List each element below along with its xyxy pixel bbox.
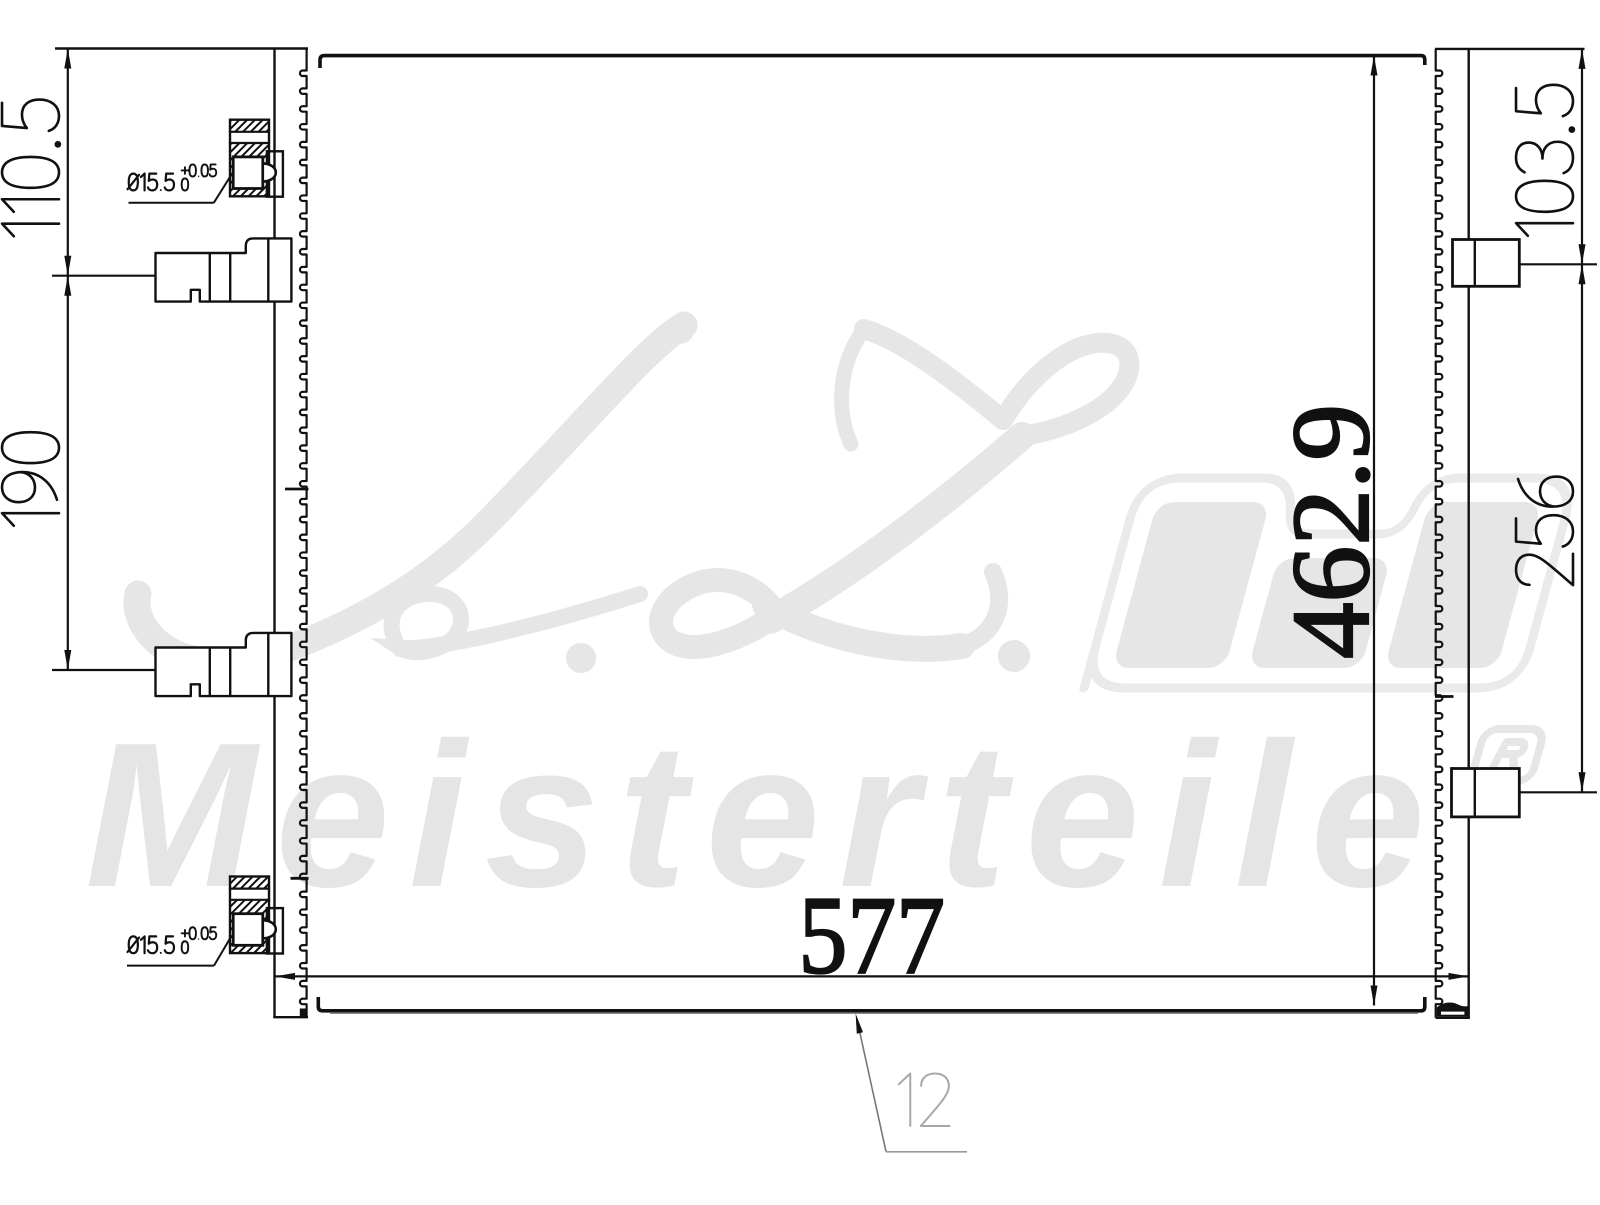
svg-text:577: 577 [799, 875, 946, 998]
svg-text:Meisterteile: Meisterteile [85, 700, 1441, 930]
svg-text:462.9: 462.9 [1270, 404, 1393, 659]
